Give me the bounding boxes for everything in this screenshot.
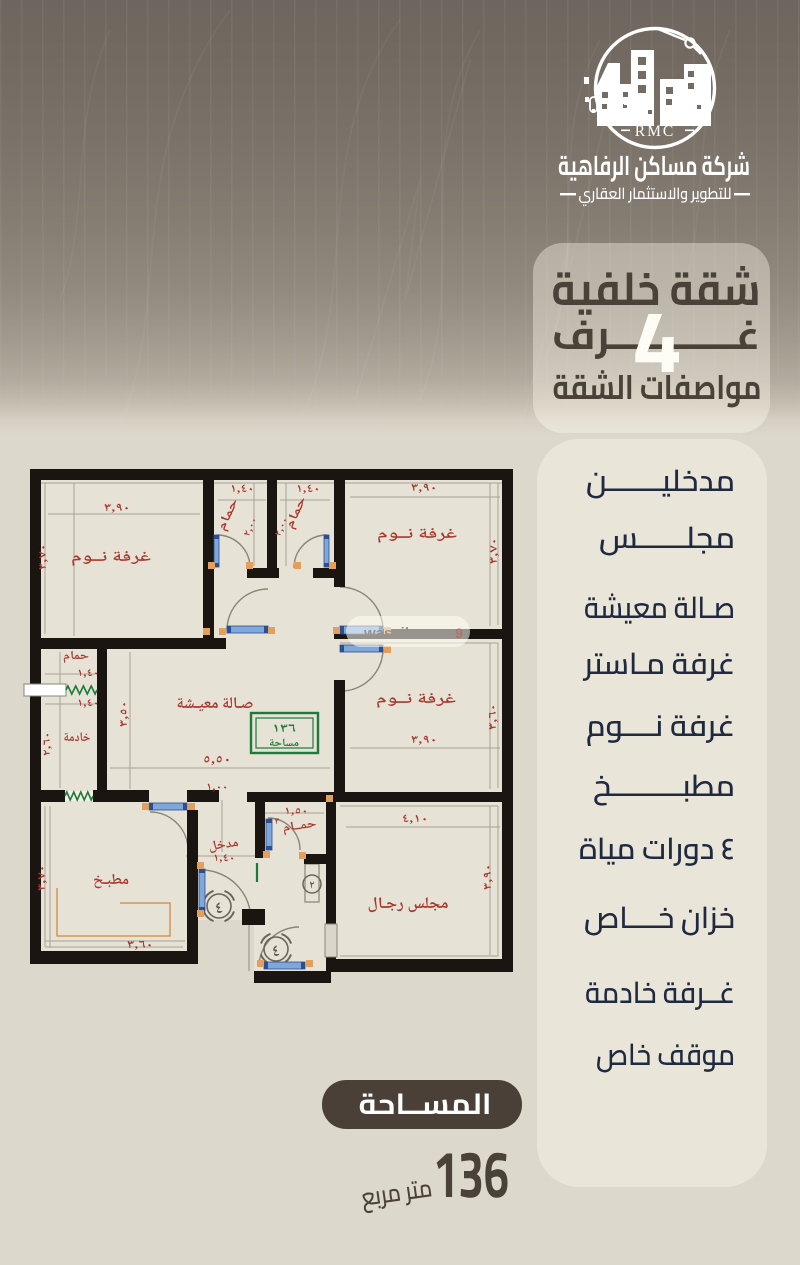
svg-text:wasail.com: wasail.com bbox=[363, 625, 444, 642]
svg-text:RMC: RMC bbox=[635, 123, 675, 140]
svg-text:9: 9 bbox=[455, 625, 463, 641]
